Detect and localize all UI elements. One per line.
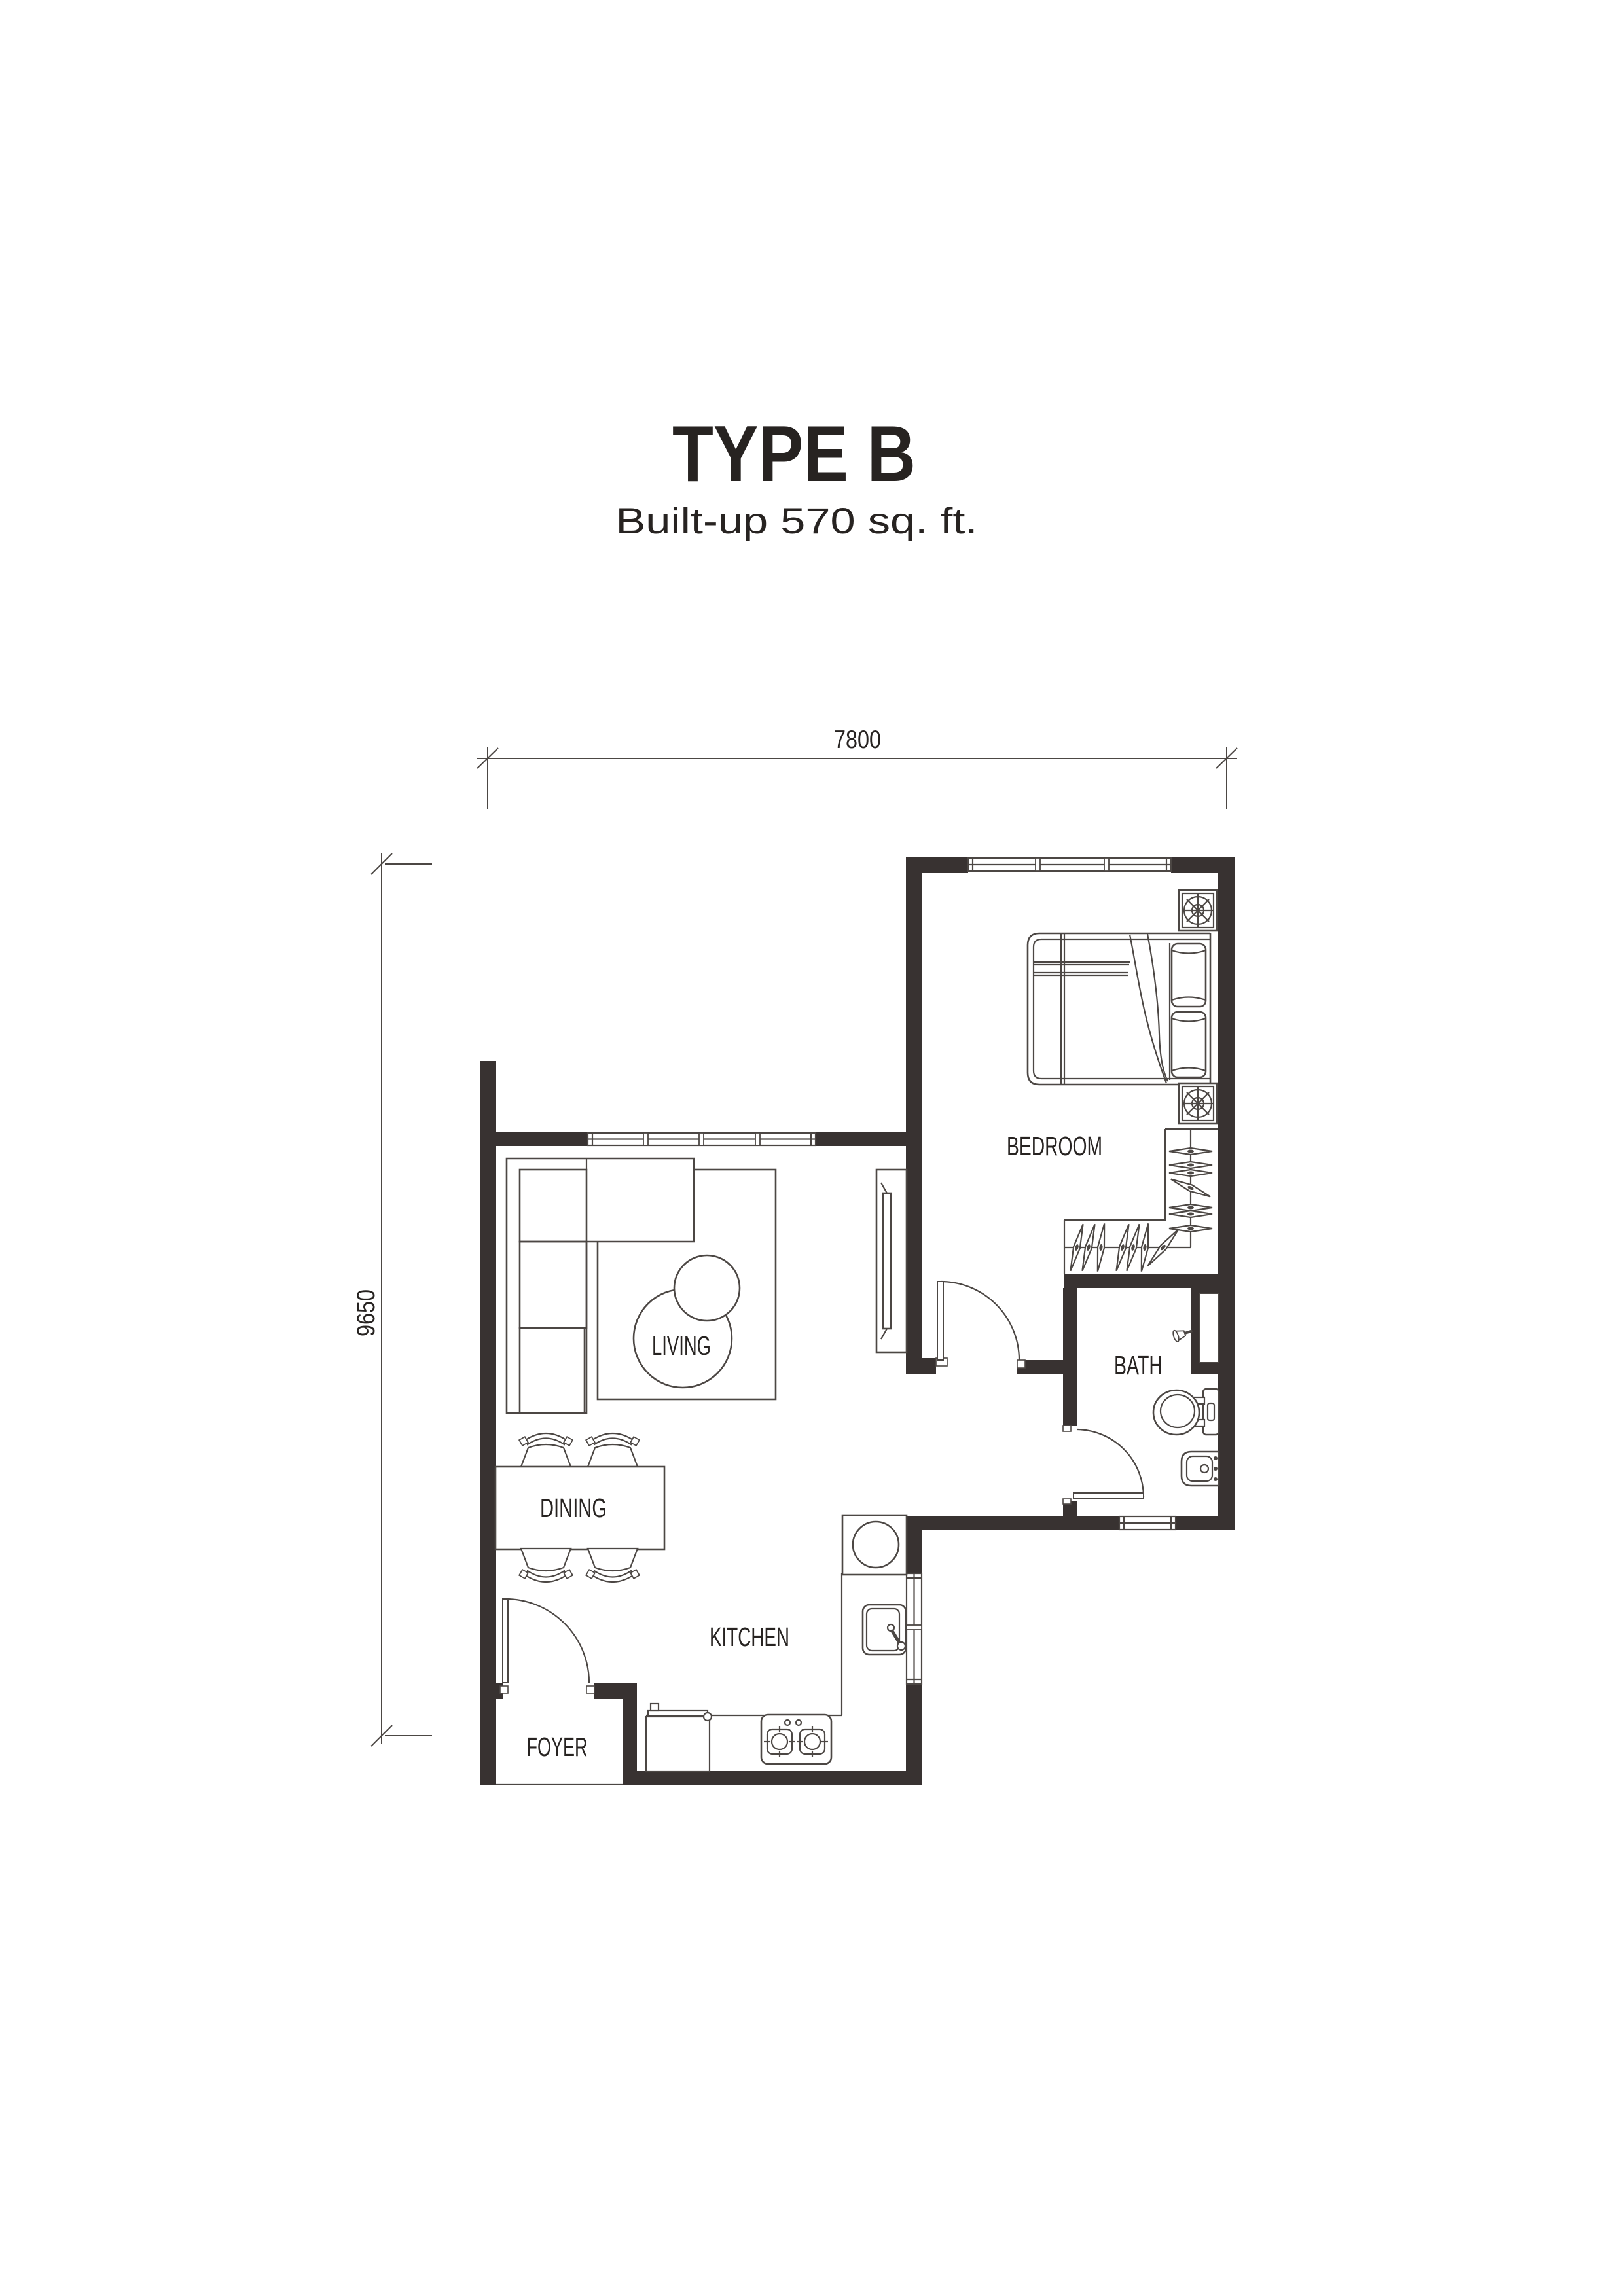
svg-text:Built-up 570 sq. ft.: Built-up 570 sq. ft. <box>616 500 978 541</box>
svg-text:9650: 9650 <box>352 1289 380 1336</box>
svg-text:TYPE B: TYPE B <box>672 409 916 498</box>
svg-text:LIVING: LIVING <box>652 1331 711 1361</box>
svg-text:7800: 7800 <box>834 726 881 754</box>
svg-text:KITCHEN: KITCHEN <box>710 1622 789 1652</box>
svg-text:BATH: BATH <box>1114 1350 1163 1380</box>
svg-text:FOYER: FOYER <box>527 1732 588 1762</box>
svg-text:BEDROOM: BEDROOM <box>1007 1131 1102 1161</box>
svg-text:DINING: DINING <box>540 1493 607 1523</box>
